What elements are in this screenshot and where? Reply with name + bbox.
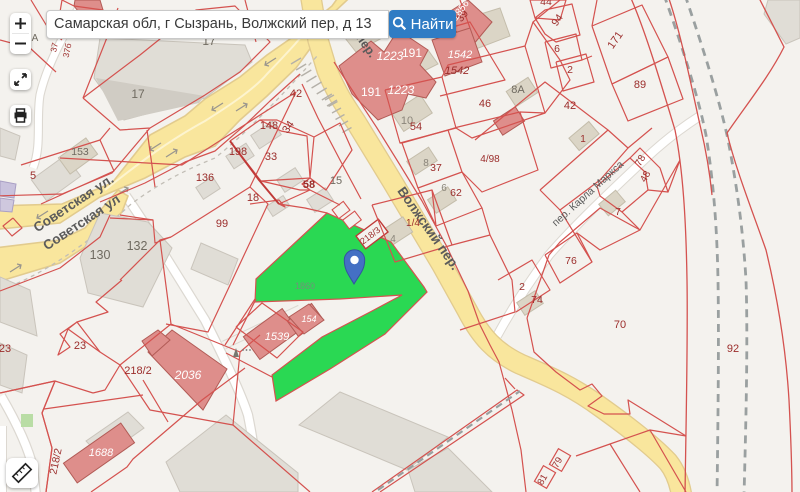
svg-text:132: 132 bbox=[127, 239, 148, 253]
svg-text:37: 37 bbox=[430, 162, 442, 174]
svg-text:136: 136 bbox=[196, 172, 214, 184]
svg-text:2: 2 bbox=[567, 64, 573, 76]
svg-text:23: 23 bbox=[0, 343, 11, 355]
svg-text:130: 130 bbox=[90, 248, 111, 262]
svg-text:1542: 1542 bbox=[448, 49, 472, 61]
svg-text:6: 6 bbox=[554, 43, 560, 55]
svg-text:1542: 1542 bbox=[445, 65, 469, 77]
svg-text:94: 94 bbox=[549, 12, 566, 29]
svg-text:1/4: 1/4 bbox=[406, 218, 420, 229]
svg-text:5: 5 bbox=[30, 170, 36, 182]
svg-text:171: 171 bbox=[605, 29, 625, 51]
svg-text:4: 4 bbox=[390, 234, 396, 245]
svg-text:198: 198 bbox=[229, 146, 247, 158]
svg-text:18: 18 bbox=[247, 192, 259, 204]
svg-text:44: 44 bbox=[540, 0, 552, 8]
svg-text:58: 58 bbox=[303, 179, 315, 191]
svg-text:70: 70 bbox=[614, 319, 626, 331]
svg-text:48: 48 bbox=[638, 169, 653, 185]
svg-text:148: 148 bbox=[260, 120, 278, 132]
svg-text:42: 42 bbox=[290, 88, 302, 100]
svg-text:89: 89 bbox=[634, 79, 646, 91]
svg-text:218/2: 218/2 bbox=[47, 447, 64, 475]
svg-text:1539: 1539 bbox=[265, 331, 289, 343]
svg-text:8: 8 bbox=[423, 158, 429, 169]
svg-text:15: 15 bbox=[330, 175, 342, 187]
svg-text:1688: 1688 bbox=[89, 447, 114, 459]
svg-text:1: 1 bbox=[580, 134, 586, 145]
svg-text:17: 17 bbox=[131, 87, 145, 101]
svg-text:62: 62 bbox=[450, 187, 462, 199]
svg-text:7: 7 bbox=[615, 206, 621, 218]
svg-text:4/98: 4/98 bbox=[480, 154, 500, 165]
svg-text:191: 191 bbox=[361, 85, 381, 99]
svg-text:8А: 8А bbox=[511, 84, 525, 96]
svg-text:42: 42 bbox=[564, 100, 576, 112]
svg-text:99: 99 bbox=[216, 218, 228, 230]
svg-text:218/2: 218/2 bbox=[124, 365, 152, 377]
svg-text:А: А bbox=[32, 33, 39, 44]
svg-text:6: 6 bbox=[441, 183, 447, 194]
svg-text:153: 153 bbox=[71, 146, 89, 158]
svg-text:92: 92 bbox=[727, 343, 739, 355]
svg-text:33: 33 bbox=[265, 151, 277, 163]
svg-text:23: 23 bbox=[74, 340, 86, 352]
svg-text:191: 191 bbox=[402, 46, 422, 60]
svg-text:154: 154 bbox=[301, 314, 316, 324]
svg-text:46: 46 bbox=[479, 98, 491, 110]
svg-text:1860: 1860 bbox=[295, 281, 315, 291]
svg-text:54: 54 bbox=[410, 121, 422, 133]
svg-text:1223: 1223 bbox=[377, 49, 404, 63]
svg-text:2036: 2036 bbox=[174, 368, 202, 382]
svg-text:1223: 1223 bbox=[388, 83, 415, 97]
svg-text:2: 2 bbox=[519, 281, 525, 293]
svg-text:76: 76 bbox=[565, 255, 577, 267]
svg-text:74: 74 bbox=[531, 294, 543, 306]
svg-text:37б: 37б bbox=[61, 42, 74, 58]
